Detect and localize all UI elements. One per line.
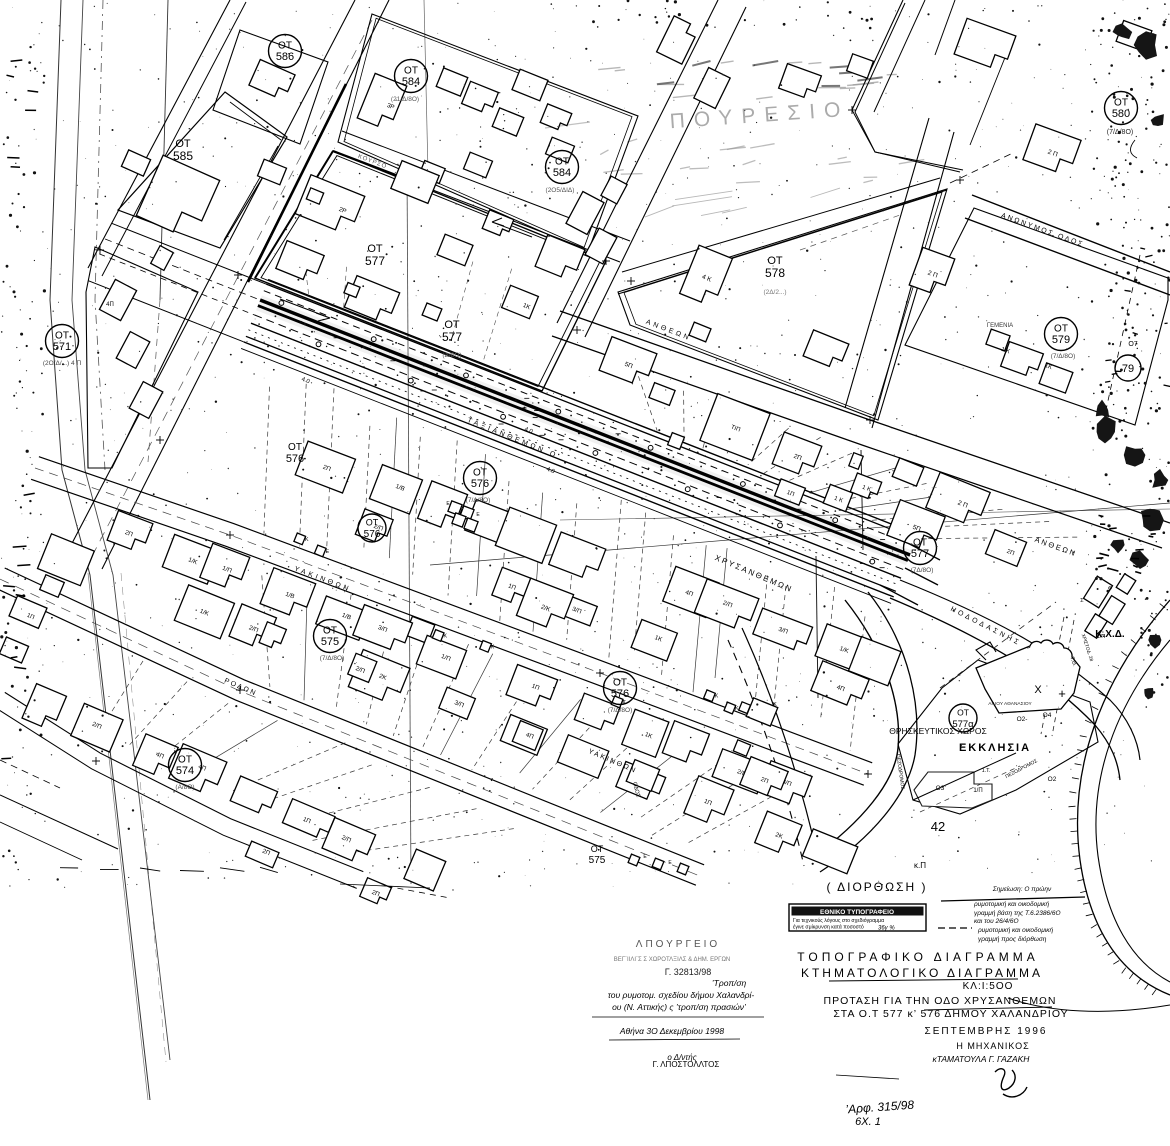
- svg-text:κΤΑΜΑΤΟΥΛΑ Γ. ΓΑΖΑΚΗ: κΤΑΜΑΤΟΥΛΑ Γ. ΓΑΖΑΚΗ: [933, 1054, 1031, 1064]
- svg-text:ΒΕΓ΄ΙΙΛΙ΄Σ Σ ΧΩΡΟΤΛΞΙΛΣ &: ΒΕΓ΄ΙΙΛΙ΄Σ Σ ΧΩΡΟΤΛΞΙΛΣ & ΔΗΜ. ΕΡΓΩΝ: [614, 957, 731, 963]
- svg-text:ΠΡΟΤΑΣΗ ΓΙΑ ΤΗΝ ΟΔΟ ΧΡΥΣΑΝΘΕΜΩ: ΠΡΟΤΑΣΗ ΓΙΑ ΤΗΝ ΟΔΟ ΧΡΥΣΑΝΘΕΜΩΝ: [824, 995, 1057, 1007]
- svg-text:ΟΤ: ΟΤ: [178, 755, 192, 766]
- svg-text:576: 576: [471, 478, 489, 490]
- svg-text:ΟΤ: ΟΤ: [55, 331, 69, 342]
- svg-text:1.Τ.: 1.Τ.: [982, 768, 991, 774]
- svg-text:6Χ. 1: 6Χ. 1: [855, 1116, 881, 1128]
- svg-text:ΟΤ: ΟΤ: [555, 157, 569, 168]
- svg-text:584: 584: [402, 76, 420, 88]
- svg-text:579: 579: [1052, 334, 1070, 346]
- svg-text:ρυμοτομική και οικοδομική: ρυμοτομική και οικοδομική: [973, 901, 1049, 908]
- svg-text:Κ: Κ: [491, 644, 495, 650]
- svg-text:ΘΡΗΣΚΕΥΤΙΚΟΣ ΧΩΡΟΣ: ΘΡΗΣΚΕΥΤΙΚΟΣ ΧΩΡΟΣ: [889, 726, 986, 736]
- svg-text:Για τεχνικούς λόγους στο σχεδι: Για τεχνικούς λόγους στο σχεδιόγραμμα: [793, 917, 884, 924]
- svg-text:ΟΤ: ΟΤ: [913, 538, 927, 549]
- svg-text:ΟΤ: ΟΤ: [366, 518, 379, 528]
- svg-text:(Δ/8Ο): (Δ/8Ο): [442, 352, 461, 359]
- svg-text:584: 584: [553, 167, 571, 179]
- svg-text:Ο7: Ο7: [1128, 341, 1137, 348]
- svg-text:ΟΤ: ΟΤ: [1054, 324, 1068, 335]
- svg-text:Ο2-: Ο2-: [1017, 716, 1028, 723]
- svg-text:Ο4: Ο4: [1043, 712, 1052, 719]
- svg-text:42: 42: [931, 819, 945, 834]
- svg-text:Ο2: Ο2: [1048, 776, 1057, 783]
- svg-text:ΤΟΠΟΓΡΑΦΙΚΟ ΔΙΑΓΡΑΜΜΑ: ΤΟΠΟΓΡΑΦΙΚΟ ΔΙΑΓΡΑΜΜΑ: [797, 950, 1038, 964]
- svg-text:ΕΚΚΛΗΣΙΑ: ΕΚΚΛΗΣΙΑ: [959, 742, 1031, 754]
- svg-text:ΚΛ:Ι:5ΟΟ: ΚΛ:Ι:5ΟΟ: [963, 981, 1014, 992]
- svg-text:ΟΤ: ΟΤ: [613, 678, 627, 689]
- svg-text:Η ΜΗΧΑΝΙΚΟΣ: Η ΜΗΧΑΝΙΚΟΣ: [956, 1041, 1029, 1051]
- svg-text:Κ: Κ: [735, 706, 739, 712]
- svg-text:ΟΤ: ΟΤ: [1114, 98, 1128, 109]
- svg-text:ΟΤ: ΟΤ: [473, 468, 487, 479]
- svg-text:ΕΘΝΙΚΟ ΤΥΠΟΓΡΑΦΕΙΟ: ΕΘΝΙΚΟ ΤΥΠΟΓΡΑΦΕΙΟ: [820, 909, 894, 916]
- svg-text:ΟΤ: ΟΤ: [591, 844, 604, 854]
- svg-text:576: 576: [364, 529, 381, 540]
- svg-text:575: 575: [589, 855, 606, 866]
- svg-text:ΚΤΗΜΑΤΟΛΟΓΙΚΟ ΔΙΑΓΡΑΜΜΑ: ΚΤΗΜΑΤΟΛΟΓΙΚΟ ΔΙΑΓΡΑΜΜΑ: [801, 966, 1043, 980]
- svg-text:1/Π: 1/Π: [973, 788, 982, 794]
- svg-text:Χ: Χ: [1034, 684, 1042, 696]
- svg-text:και του 26/4/6Ο: και του 26/4/6Ο: [974, 918, 1019, 925]
- svg-text:576: 576: [286, 453, 304, 465]
- svg-text:(7/Δ/8Ο): (7/Δ/8Ο): [608, 707, 633, 714]
- svg-text:(Α/8Ο): (Α/8Ο): [175, 784, 194, 791]
- svg-text:ΣΕΠΤΕΜΒΡΗΣ 1996: ΣΕΠΤΕΜΒΡΗΣ 1996: [925, 1026, 1048, 1037]
- svg-text:ΟΤ: ΟΤ: [404, 66, 418, 77]
- svg-text:576: 576: [611, 688, 629, 700]
- svg-text:586: 586: [276, 51, 294, 63]
- svg-text:79: 79: [1122, 363, 1134, 375]
- svg-text:585: 585: [173, 149, 193, 163]
- svg-text:( ΔΙΟΡΘΩΣΗ ): ( ΔΙΟΡΘΩΣΗ ): [826, 880, 927, 894]
- svg-text:Ε: Ε: [325, 549, 329, 555]
- svg-text:577: 577: [442, 330, 462, 344]
- svg-text:(2Δ/2...): (2Δ/2...): [763, 289, 786, 296]
- svg-text:ΟΤ: ΟΤ: [278, 41, 292, 52]
- svg-text:+: +: [1058, 686, 1066, 701]
- svg-text:577: 577: [365, 254, 385, 268]
- svg-text:(2Ο/Δ/...) 4 Π: (2Ο/Δ/...) 4 Π: [43, 360, 82, 367]
- svg-text:Σημείωση: Ο πρώην: Σημείωση: Ο πρώην: [992, 885, 1052, 893]
- svg-text:Κ: Κ: [305, 537, 309, 543]
- svg-text:(2Ο5/ΔΙΔ): (2Ο5/ΔΙΔ): [546, 187, 575, 194]
- svg-text:4Π: 4Π: [106, 302, 114, 308]
- svg-text:575: 575: [321, 636, 339, 648]
- svg-text:κ.Π: κ.Π: [914, 861, 926, 870]
- svg-text:Κ: Κ: [443, 633, 447, 639]
- svg-text:ΓΕΜΕΝΙΑ: ΓΕΜΕΝΙΑ: [987, 323, 1013, 329]
- svg-text:Γ. 32813/98: Γ. 32813/98: [665, 967, 712, 977]
- svg-text:(7/Δ/8Ο): (7/Δ/8Ο): [320, 655, 345, 662]
- svg-text:36γ %: 36γ %: [878, 926, 895, 932]
- svg-text:574: 574: [176, 765, 194, 777]
- svg-text:577: 577: [911, 548, 929, 560]
- svg-text:Σ: Σ: [1080, 598, 1084, 604]
- svg-text:του ρυμοτομ. σχεδίου δήμου Χαλ: του ρυμοτομ. σχεδίου δήμου Χαλανδρί-: [608, 990, 755, 1000]
- svg-text:ΑΓ.ΙΟΥ ΑΘΑΝΑΣΙΟΥ: ΑΓ.ΙΟΥ ΑΘΑΝΑΣΙΟΥ: [988, 701, 1032, 707]
- svg-text:Αθήνα 3Ο Δεκεμβρίου 1998: Αθήνα 3Ο Δεκεμβρίου 1998: [619, 1026, 724, 1036]
- svg-text:(21/Δ/8Ο): (21/Δ/8Ο): [391, 96, 419, 103]
- svg-text:578: 578: [765, 266, 785, 280]
- svg-text:(7/Δ/8Ο): (7/Δ/8Ο): [1051, 353, 1076, 360]
- svg-text:Κ: Κ: [715, 694, 719, 700]
- svg-text:ΟΤ: ΟΤ: [323, 626, 337, 637]
- svg-text:ου (Ν. Αττικής) ς ’τροπ/ση πρα: ου (Ν. Αττικής) ς ’τροπ/ση πρασιών’: [612, 1002, 746, 1012]
- svg-text:ρυμοτομική και οικοδομική: ρυμοτομική και οικοδομική: [977, 927, 1053, 934]
- svg-text:έγινε σμίκρυνση κατά ποσοστό: έγινε σμίκρυνση κατά ποσοστό: [793, 924, 864, 931]
- svg-text:ΛΠΟΥΡΓΕΙΟ: ΛΠΟΥΡΓΕΙΟ: [636, 939, 720, 950]
- svg-text:Κ: Κ: [773, 702, 777, 708]
- svg-text:ΟΤ: ΟΤ: [288, 442, 302, 453]
- svg-text:580: 580: [1112, 108, 1130, 120]
- svg-text:571: 571: [53, 341, 71, 353]
- svg-text:γραμμή βάση της Τ.6.2386/6Ο: γραμμή βάση της Τ.6.2386/6Ο: [974, 909, 1061, 917]
- svg-text:Κ.Χ.Δ.: Κ.Χ.Δ.: [1095, 629, 1125, 640]
- svg-text:Γ. ΛΠΟΣΤΟΛΛΤΟΣ: Γ. ΛΠΟΣΤΟΛΛΤΟΣ: [653, 1060, 720, 1069]
- svg-text:(7/Δ/8Ο): (7/Δ/8Ο): [466, 497, 491, 504]
- svg-text:ΟΤ: ΟΤ: [957, 708, 969, 718]
- svg-text:γραμμή προς διόρθωση: γραμμή προς διόρθωση: [978, 935, 1047, 943]
- svg-text:’Τροπ/ση: ’Τροπ/ση: [712, 978, 747, 988]
- svg-text:(7Δ/8Ο): (7Δ/8Ο): [911, 567, 934, 574]
